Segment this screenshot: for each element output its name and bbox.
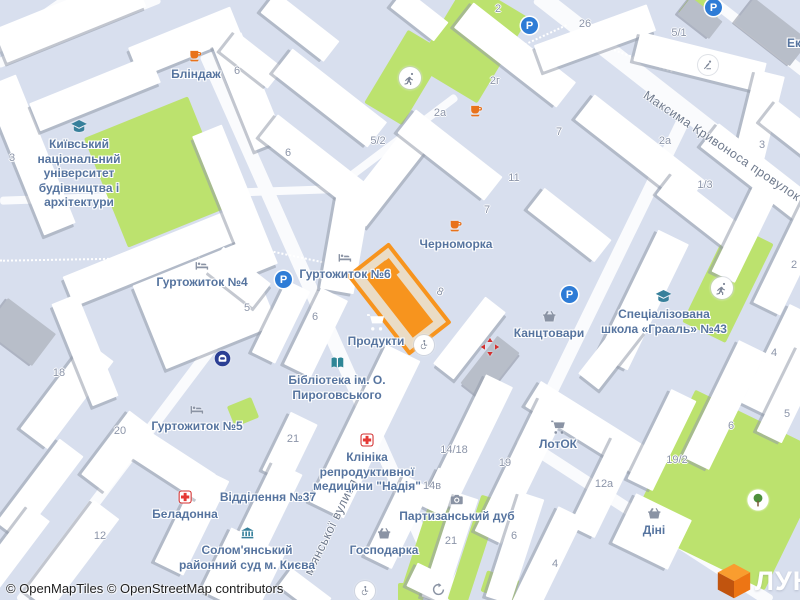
poi-dorm6[interactable]: Гуртожиток №6	[299, 250, 390, 282]
bed-icon	[195, 258, 210, 273]
parking-icon[interactable]: P	[275, 271, 292, 288]
shopping-basket-icon	[377, 526, 392, 541]
poi-label: Діні	[643, 523, 665, 538]
building	[527, 188, 611, 262]
house-number: 12	[94, 530, 106, 542]
house-number: 4	[771, 347, 777, 359]
cafe-icon	[447, 218, 464, 235]
poi-label: Продукти	[348, 334, 405, 349]
tree-icon[interactable]	[747, 489, 769, 511]
wheelchair-icon[interactable]	[355, 581, 375, 600]
poi-label: Бібліотека ім. О. Пироговського	[288, 373, 385, 402]
house-number: 5/1	[671, 27, 686, 39]
poi-label: ЛотОК	[539, 437, 577, 452]
vehicle-icon[interactable]	[214, 350, 231, 367]
poi-dorm4[interactable]: Гуртожиток №4	[156, 258, 247, 290]
building	[0, 0, 146, 63]
house-number: 5	[784, 408, 790, 420]
poi-kantstovary[interactable]: Канцтовари	[514, 309, 584, 341]
shopping-basket-icon	[647, 506, 662, 521]
parking-icon[interactable]: P	[561, 286, 578, 303]
house-number: 11	[508, 172, 519, 184]
bed-icon	[190, 402, 205, 417]
poi-partisan-oak[interactable]: Партизанський дуб	[399, 492, 514, 524]
house-number: 6	[285, 147, 291, 159]
poi-school[interactable]: Спеціалізована школа «Грааль» №43	[601, 288, 727, 336]
house-number: 3	[759, 139, 765, 151]
poi-label: Гуртожиток №5	[151, 419, 242, 434]
shopping-cart-icon	[366, 312, 386, 332]
house-number: 14/18	[440, 444, 468, 456]
bed-icon	[338, 250, 353, 265]
poi-dorm5[interactable]: Гуртожиток №5	[151, 402, 242, 434]
house-number: 6	[511, 530, 517, 542]
poi-produkty[interactable]: Продукти	[348, 312, 405, 349]
house-number: 5/2	[370, 135, 385, 147]
poi-clinic[interactable]: Клініка репродуктивної медицини "Надія"	[313, 432, 421, 494]
poi-post-office[interactable]: Відділення №37	[220, 490, 316, 505]
house-number: 4	[552, 558, 558, 570]
shopping-cart-icon	[550, 419, 566, 435]
poi-ek-partial[interactable]: Ек	[787, 36, 800, 51]
poi-label: Відділення №37	[220, 490, 316, 505]
building	[735, 0, 800, 66]
running-icon[interactable]	[399, 67, 421, 89]
graduation-cap-icon	[655, 288, 672, 305]
house-number: 2г	[490, 75, 500, 87]
house-number: 26	[579, 18, 591, 30]
red-arrows-icon[interactable]	[480, 337, 500, 357]
graduation-cap-icon	[70, 118, 87, 135]
pharmacy-cross-icon	[359, 432, 375, 448]
house-number: 21	[287, 433, 299, 445]
poi-label: Гуртожиток №6	[299, 267, 390, 282]
house-number: 2	[791, 259, 797, 271]
poi-label: Господарка	[350, 543, 419, 558]
cafe-icon	[187, 48, 204, 65]
poi-label: Беладонна	[152, 507, 218, 522]
house-number: 2	[495, 3, 501, 15]
poi-label: Бліндаж	[171, 67, 221, 82]
house-number: 6	[312, 311, 318, 323]
poi-label: Гуртожиток №4	[156, 275, 247, 290]
poi-label: Клініка репродуктивної медицини "Надія"	[313, 450, 421, 494]
house-number: 8	[435, 285, 446, 298]
house-number: 2а	[659, 135, 671, 147]
poi-chornomorka[interactable]: Черноморка	[420, 218, 493, 252]
camera-icon	[449, 492, 464, 507]
poi-court[interactable]: Солом'янський районний суд м. Києва	[179, 526, 315, 572]
house-number: 12а	[595, 478, 613, 490]
house-number: 6	[234, 65, 240, 77]
house-number: 6	[728, 420, 734, 432]
house-number: 1/3	[697, 179, 712, 191]
courthouse-icon	[240, 526, 255, 541]
house-number: 7	[556, 126, 562, 138]
poi-label: Київський національний університет будів…	[38, 137, 121, 210]
map-canvas[interactable]: P P P P Бліндаж Київський національний у…	[0, 0, 800, 600]
poi-label: Партизанський дуб	[399, 509, 514, 524]
house-number: 14в	[423, 480, 441, 492]
house-number: 20	[114, 425, 126, 437]
house-number: 3	[9, 152, 15, 164]
lun-logo-text: ЛУН	[755, 566, 800, 597]
house-number: 19/2	[666, 454, 687, 466]
poi-university[interactable]: Київський національний університет будів…	[38, 118, 121, 210]
poi-label: Солом'янський районний суд м. Києва	[179, 543, 315, 572]
poi-blindazh[interactable]: Бліндаж	[171, 48, 221, 82]
book-icon	[329, 355, 345, 371]
lun-logo[interactable]: ЛУН	[716, 563, 800, 599]
house-number: 18	[53, 367, 65, 379]
parking-icon[interactable]: P	[521, 17, 538, 34]
poi-hospodarka[interactable]: Господарка	[350, 526, 419, 558]
house-number: 2а	[434, 107, 446, 119]
playground-icon[interactable]	[698, 55, 718, 75]
poi-label: Черноморка	[420, 237, 493, 252]
recycle-icon[interactable]	[431, 582, 446, 597]
house-number: 5	[244, 302, 250, 314]
building	[0, 298, 56, 366]
pharmacy-cross-icon	[177, 489, 193, 505]
shopping-basket-icon	[541, 309, 556, 324]
poi-label: Канцтовари	[514, 326, 584, 341]
cafe-icon[interactable]	[468, 103, 485, 120]
poi-dini[interactable]: Діні	[643, 506, 665, 538]
building	[260, 0, 339, 62]
poi-label: Спеціалізована школа «Грааль» №43	[601, 307, 727, 336]
wheelchair-icon[interactable]	[414, 335, 434, 355]
house-number: 7	[484, 204, 490, 216]
house-number: 19	[499, 457, 511, 469]
poi-lotok[interactable]: ЛотОК	[539, 419, 577, 452]
lun-cube-logo	[716, 563, 752, 599]
poi-beladonna[interactable]: Беладонна	[152, 489, 218, 522]
map-attribution[interactable]: © OpenMapTiles © OpenStreetMap contribut…	[6, 581, 283, 596]
poi-label: Ек	[787, 36, 800, 51]
poi-library[interactable]: Бібліотека ім. О. Пироговського	[288, 355, 385, 402]
house-number: 21	[445, 535, 457, 547]
